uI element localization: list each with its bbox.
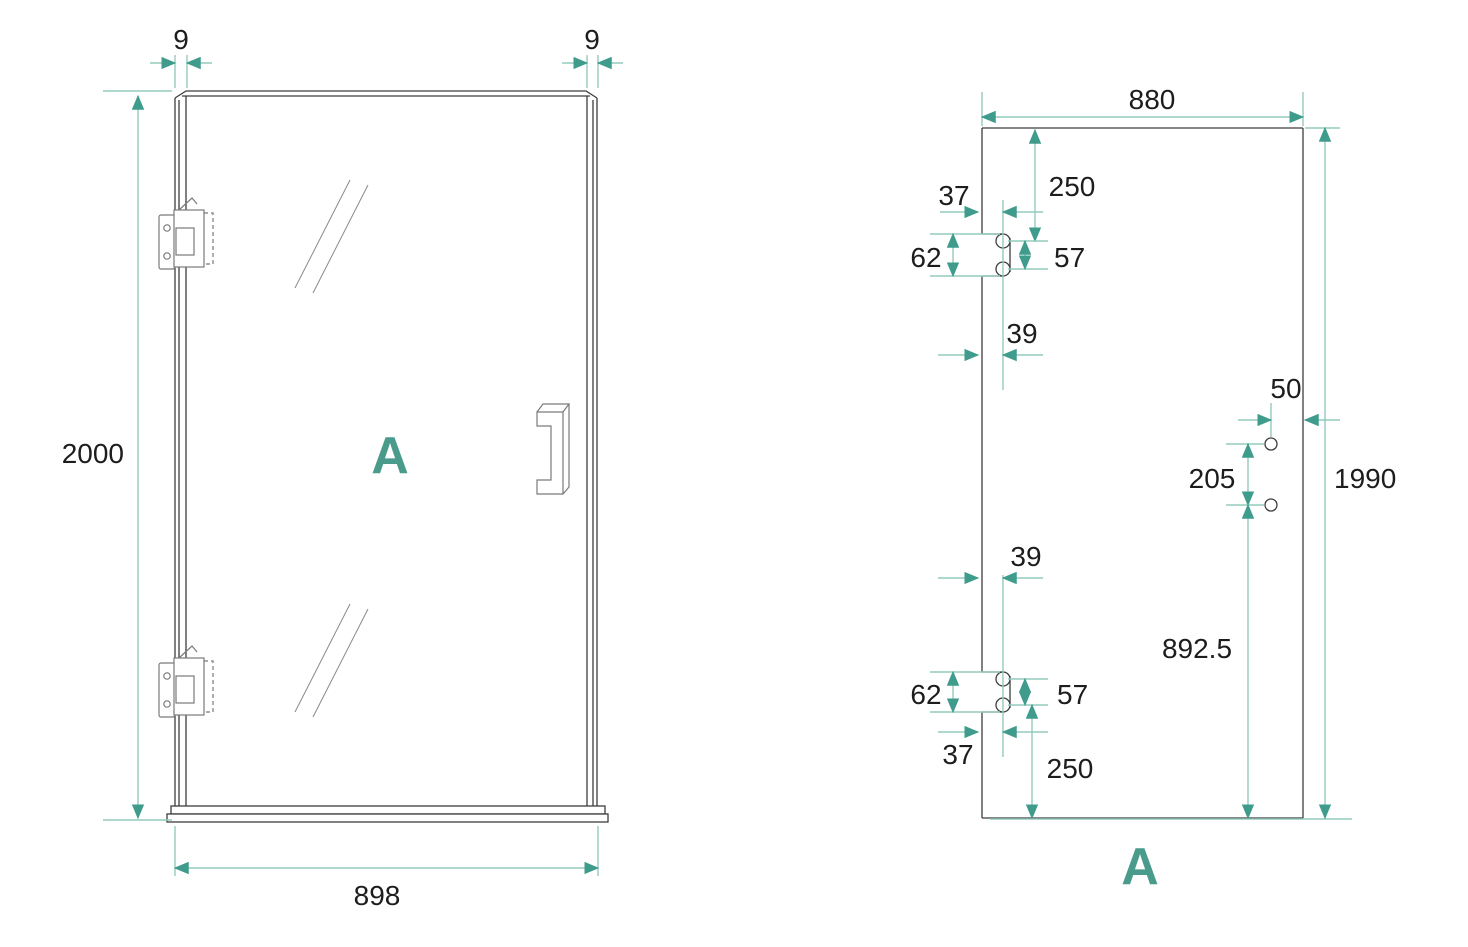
- dim-label-panel-height: 1990: [1334, 463, 1396, 494]
- dim-label-top-center-inset: 39: [1006, 318, 1037, 349]
- door-handle: [537, 404, 569, 494]
- top-hinge-cutout: [982, 234, 1010, 276]
- glass-shine-marks: [295, 180, 368, 717]
- hinge-screw-hole: [164, 253, 170, 259]
- dim-label-door-width: 898: [354, 880, 401, 911]
- dim-label-bottom-center-inset: 39: [1010, 541, 1041, 572]
- drawing-svg: A 2000 9 9 898: [0, 0, 1468, 947]
- dim-label-door-height: 2000: [62, 438, 124, 469]
- dim-label-bottom-cutout-height: 62: [910, 679, 941, 710]
- dim-label-top-from-top: 250: [1049, 171, 1096, 202]
- dim-label-bottom-from-bottom: 250: [1047, 753, 1094, 784]
- dim-label-top-cutout-height: 62: [910, 242, 941, 273]
- dim-label-hole-from-bottom: 892.5: [1162, 633, 1232, 664]
- dim-door-height: 2000: [62, 91, 172, 820]
- left-view: A 2000 9 9 898: [62, 24, 623, 911]
- dim-label-bottom-hole-spacing: 57: [1057, 679, 1088, 710]
- bottom-rail: [171, 806, 605, 814]
- door-top-edge: [175, 91, 597, 98]
- shower-door-technical-drawing: A 2000 9 9 898: [0, 0, 1468, 947]
- dims-top-hinge: 37 250 62 57 39: [910, 130, 1095, 390]
- right-view: A 880 1990 37 250 62: [910, 84, 1396, 896]
- panel-label: A: [1121, 838, 1159, 896]
- dim-label-hole-from-edge: 50: [1270, 373, 1301, 404]
- dim-label-top-edge-inset: 37: [938, 180, 969, 211]
- handle-hole-top: [1265, 438, 1277, 450]
- dim-gap-right: 9: [562, 24, 623, 88]
- glass-panel: [982, 128, 1303, 818]
- hinge-screw-hole: [164, 225, 170, 231]
- dim-label-hole-spacing: 205: [1189, 463, 1236, 494]
- bottom-sill: [167, 814, 608, 822]
- dim-label-gap-right: 9: [584, 24, 600, 55]
- dim-label-panel-width: 880: [1129, 84, 1176, 115]
- handle-hole-bottom: [1265, 499, 1277, 511]
- dim-label-gap-left: 9: [173, 24, 189, 55]
- dim-label-top-hole-spacing: 57: [1054, 242, 1085, 273]
- dim-door-width: 898: [175, 826, 598, 911]
- dim-gap-left: 9: [150, 24, 212, 88]
- dim-panel-width: 880: [982, 84, 1303, 126]
- dims-handle-holes: 50 205 892.5: [1162, 373, 1340, 818]
- dim-label-bottom-edge-inset: 37: [942, 739, 973, 770]
- bottom-hinge-cutout: [982, 672, 1010, 712]
- panel-label: A: [371, 427, 409, 485]
